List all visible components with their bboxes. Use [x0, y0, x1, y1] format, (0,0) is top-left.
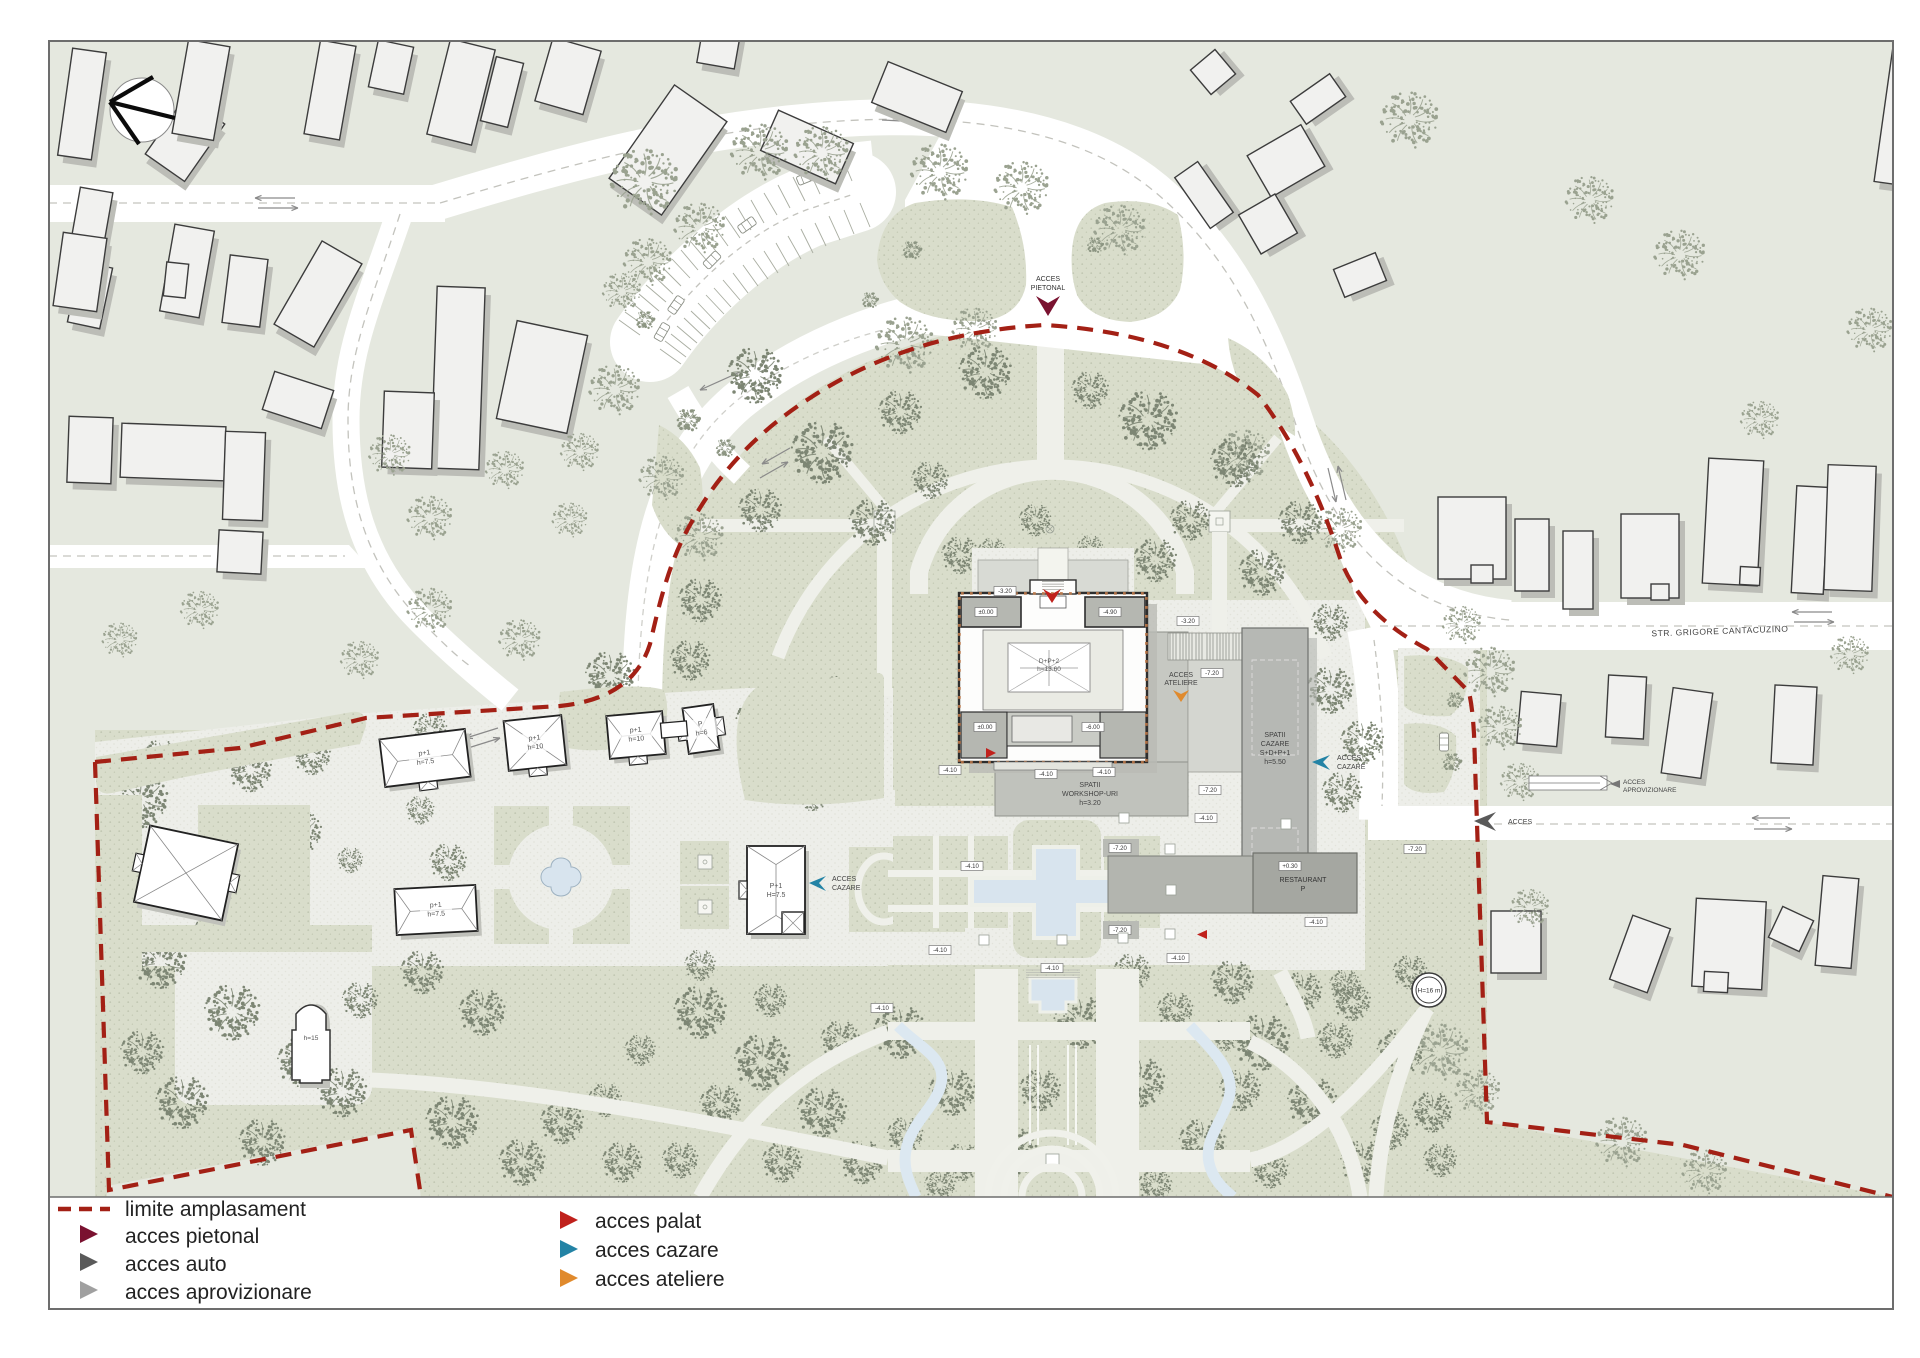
- svg-text:acces palat: acces palat: [595, 1210, 701, 1233]
- svg-text:h=10: h=10: [628, 735, 644, 743]
- svg-text:h=13.60: h=13.60: [1037, 666, 1061, 673]
- svg-text:WORKSHOP-URI: WORKSHOP-URI: [1062, 791, 1118, 798]
- svg-text:-4.10: -4.10: [943, 768, 957, 774]
- svg-text:p+1: p+1: [430, 902, 442, 910]
- svg-text:-4.10: -4.10: [1045, 966, 1059, 972]
- svg-text:p+1: p+1: [629, 727, 642, 735]
- svg-text:p+1: p+1: [418, 749, 431, 757]
- svg-text:-7.20: -7.20: [1113, 846, 1127, 852]
- svg-text:RESTAURANT: RESTAURANT: [1280, 877, 1328, 884]
- svg-text:-7.20: -7.20: [1203, 788, 1217, 794]
- svg-text:acces cazare: acces cazare: [595, 1239, 719, 1262]
- svg-text:-4.10: -4.10: [965, 864, 979, 870]
- svg-text:PIETONAL: PIETONAL: [1031, 285, 1066, 292]
- svg-text:CAZARE: CAZARE: [1261, 741, 1290, 748]
- svg-text:-3.20: -3.20: [1181, 619, 1195, 625]
- svg-text:h=7.5: h=7.5: [427, 911, 445, 919]
- svg-text:-4.10: -4.10: [875, 1006, 889, 1012]
- svg-text:acces pietonal: acces pietonal: [125, 1225, 259, 1248]
- svg-text:-6.00: -6.00: [1086, 725, 1100, 731]
- svg-text:-3.20: -3.20: [998, 589, 1012, 595]
- svg-text:H=16 m: H=16 m: [1418, 988, 1441, 995]
- svg-text:SPATII: SPATII: [1264, 732, 1285, 739]
- svg-text:D+P+2: D+P+2: [1039, 658, 1060, 665]
- svg-text:APROVIZIONARE: APROVIZIONARE: [1623, 787, 1677, 794]
- svg-text:acces ateliere: acces ateliere: [595, 1268, 725, 1291]
- svg-text:h=3.20: h=3.20: [1079, 800, 1101, 807]
- svg-text:±0.00: ±0.00: [978, 725, 994, 731]
- svg-text:P: P: [1301, 886, 1306, 893]
- svg-text:ACCES: ACCES: [832, 876, 856, 883]
- svg-text:acces auto: acces auto: [125, 1253, 227, 1276]
- svg-text:+0.30: +0.30: [1282, 864, 1298, 870]
- svg-text:H=7.5: H=7.5: [767, 892, 786, 899]
- svg-text:-4.90: -4.90: [1103, 610, 1117, 616]
- svg-text:CAZARE: CAZARE: [1337, 764, 1366, 771]
- svg-text:SPATII: SPATII: [1079, 782, 1100, 789]
- svg-text:h=15: h=15: [304, 1035, 319, 1042]
- svg-text:-4.10: -4.10: [1039, 772, 1053, 778]
- svg-text:acces aprovizionare: acces aprovizionare: [125, 1281, 312, 1304]
- svg-text:ACCES: ACCES: [1036, 276, 1060, 283]
- svg-text:±0.00: ±0.00: [979, 610, 995, 616]
- svg-text:ATELIERE: ATELIERE: [1164, 680, 1198, 687]
- svg-text:ACCES: ACCES: [1623, 779, 1646, 786]
- svg-text:-4.10: -4.10: [1171, 956, 1185, 962]
- svg-text:-4.10: -4.10: [933, 948, 947, 954]
- svg-text:S+D+P+1: S+D+P+1: [1260, 750, 1291, 757]
- svg-text:ACCES: ACCES: [1337, 755, 1361, 762]
- svg-text:h=5.50: h=5.50: [1264, 759, 1286, 766]
- svg-text:CAZARE: CAZARE: [832, 885, 861, 892]
- svg-text:-7.20: -7.20: [1408, 847, 1422, 853]
- svg-text:-4.10: -4.10: [1199, 816, 1213, 822]
- svg-text:-7.20: -7.20: [1205, 671, 1219, 677]
- svg-text:p+1: p+1: [528, 734, 541, 742]
- svg-text:limite amplasament: limite amplasament: [125, 1198, 306, 1221]
- svg-text:ACCES: ACCES: [1169, 672, 1193, 679]
- svg-text:-4.10: -4.10: [1309, 920, 1323, 926]
- svg-text:-4.10: -4.10: [1097, 770, 1111, 776]
- svg-text:ACCES: ACCES: [1508, 819, 1532, 826]
- svg-text:P+1: P+1: [770, 883, 783, 890]
